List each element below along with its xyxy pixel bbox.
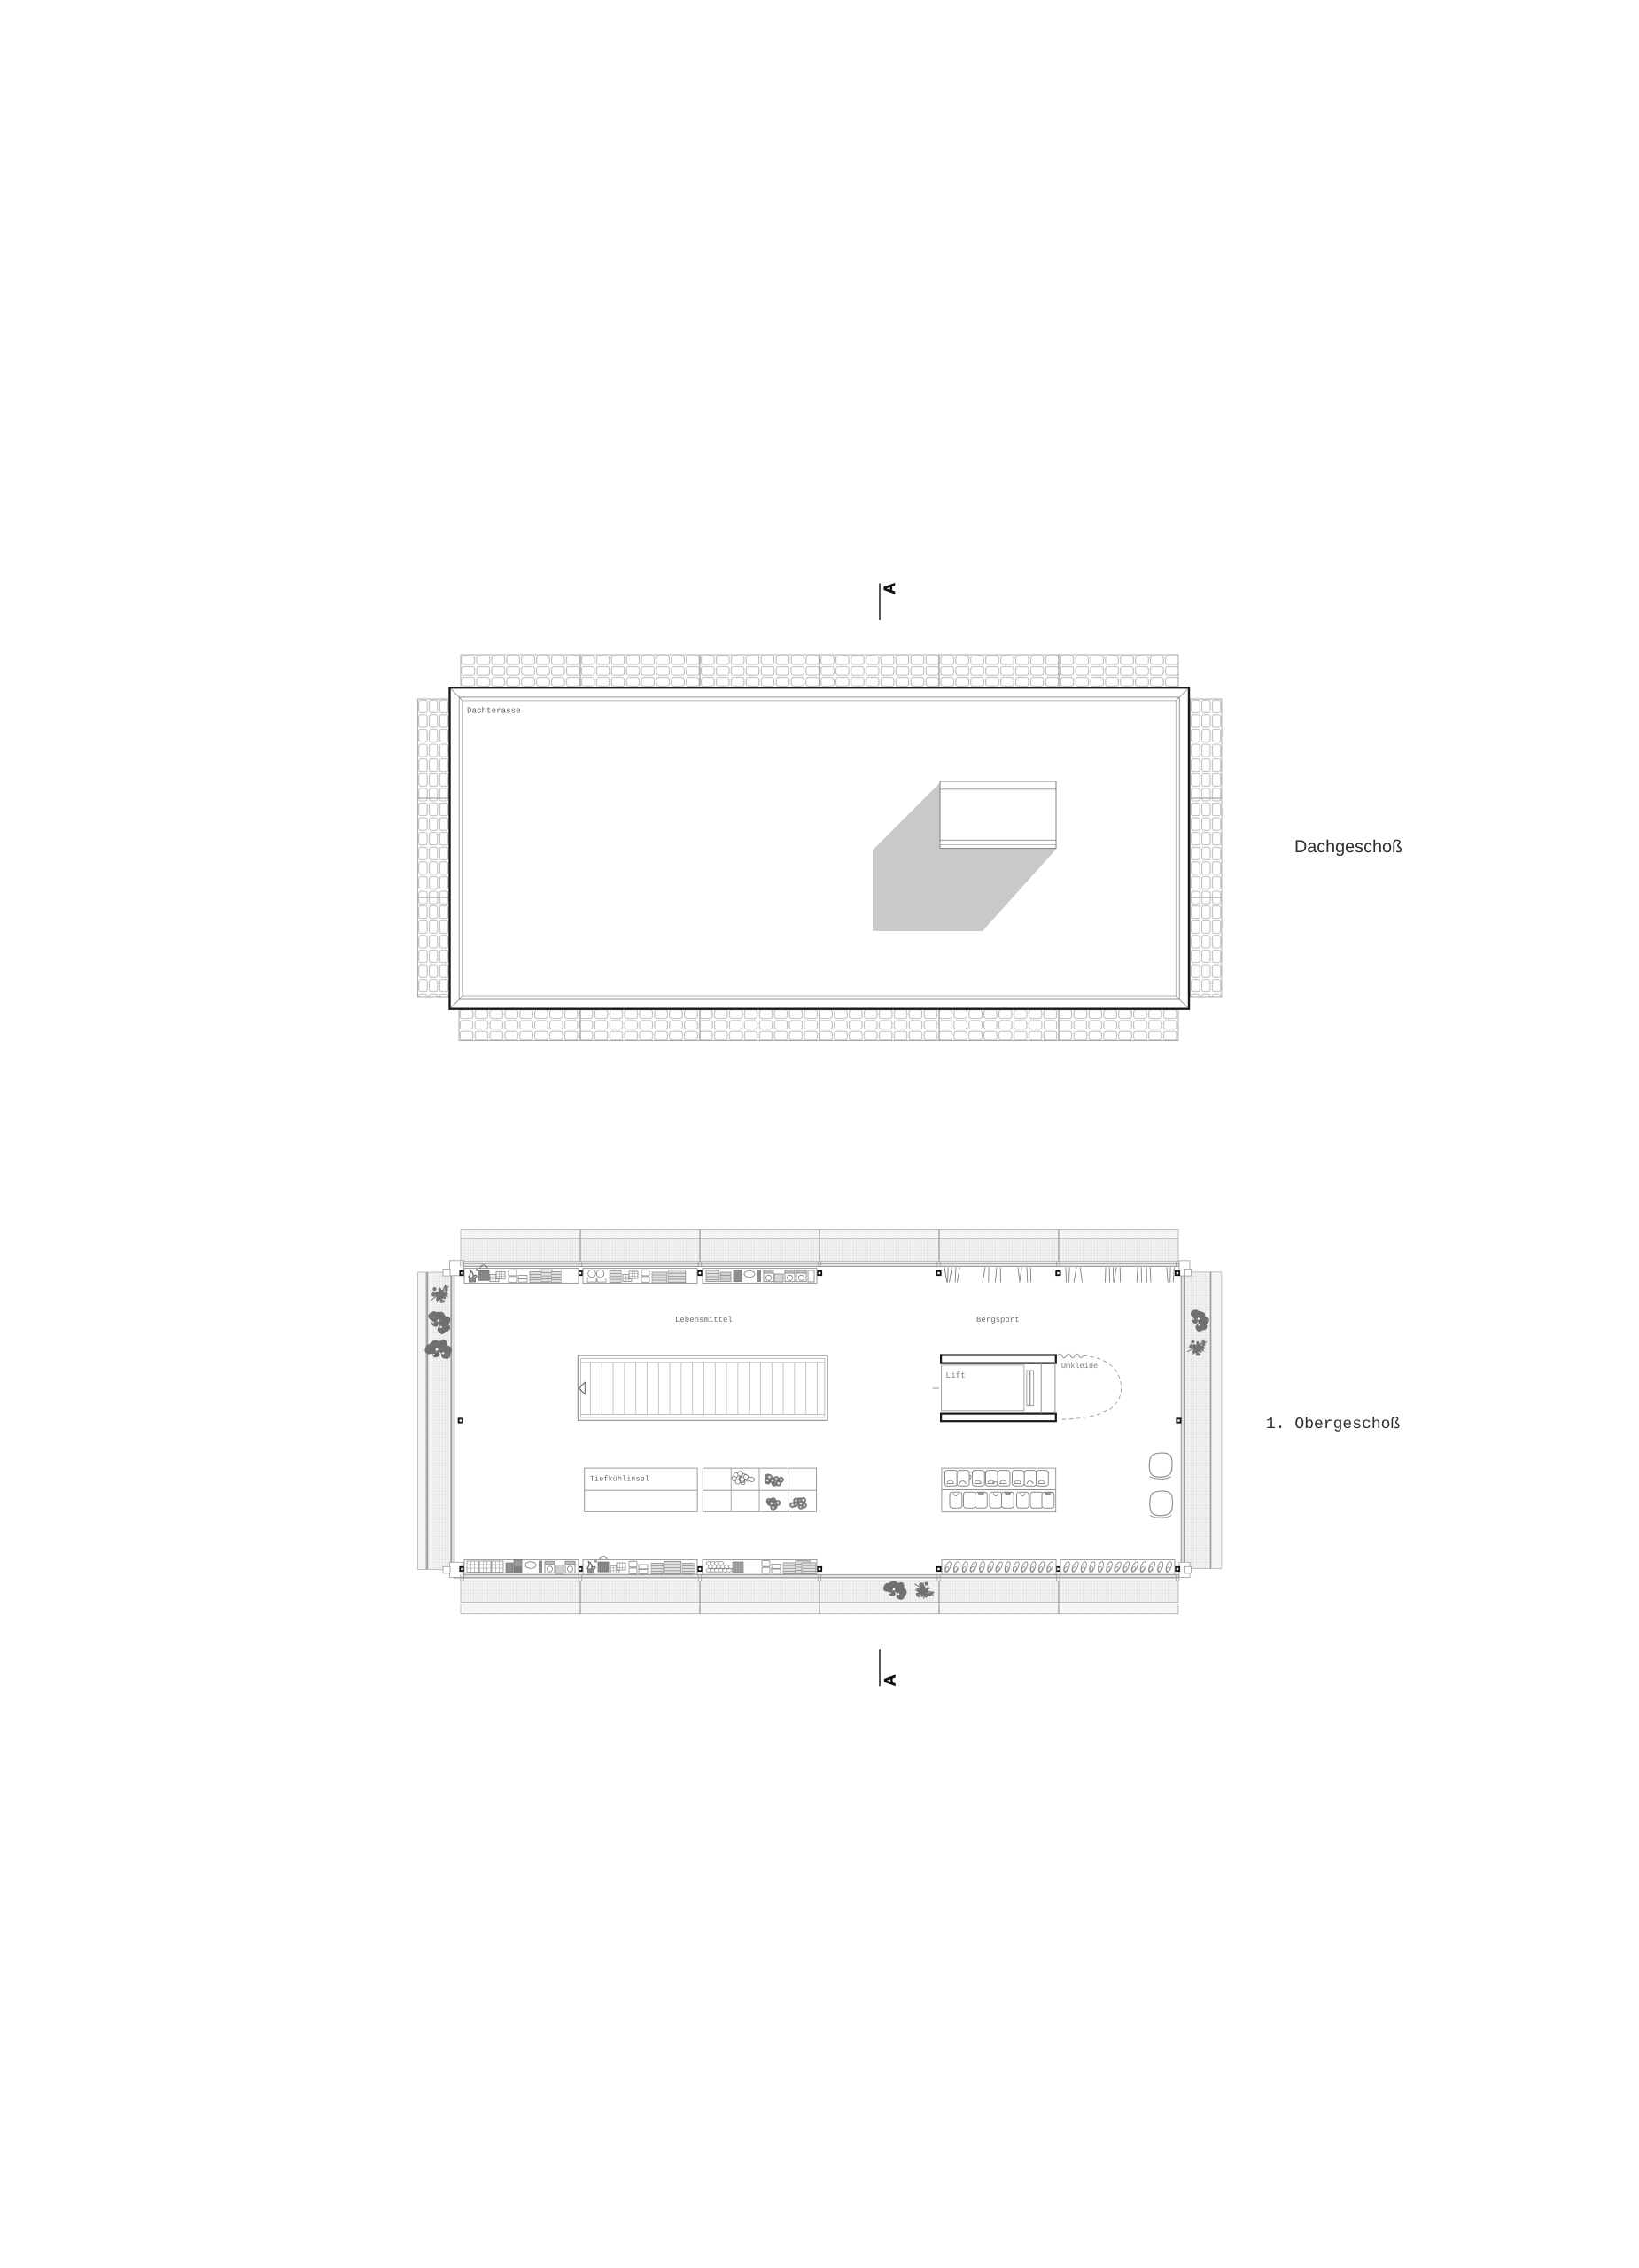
svg-text:Umkleide: Umkleide	[1061, 1362, 1098, 1371]
svg-text:A: A	[881, 583, 898, 594]
svg-text:Dachterasse: Dachterasse	[467, 706, 521, 716]
svg-text:A: A	[881, 1674, 898, 1686]
svg-text:Bergsport: Bergsport	[976, 1316, 1020, 1324]
svg-text:Lebensmittel: Lebensmittel	[675, 1316, 733, 1324]
svg-text:Dachgeschoß: Dachgeschoß	[1294, 837, 1402, 857]
svg-text:Lift: Lift	[946, 1371, 966, 1380]
svg-text:1. Obergeschoß: 1. Obergeschoß	[1266, 1416, 1400, 1433]
svg-text:Tiefkühlinsel: Tiefkühlinsel	[590, 1474, 649, 1483]
